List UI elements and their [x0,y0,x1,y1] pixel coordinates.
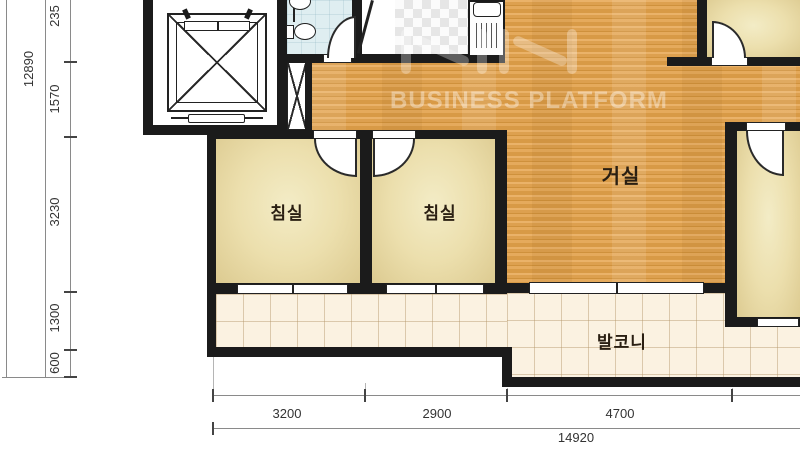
watermark-logo-icon [477,29,487,74]
room-label-living: 거실 [581,160,661,189]
dim-line [45,0,46,378]
toilet-icon [294,23,316,40]
wall [207,130,216,357]
watermark-logo-icon [567,29,577,74]
dim-left-seg-4: 600 [47,333,63,393]
counterweight-icon [188,114,245,123]
window [529,282,704,294]
door-threshold [372,130,416,139]
door-threshold [711,57,748,66]
dim-tick [731,389,733,402]
dim-bottom-seg-2: 4700 [590,406,650,422]
kitchen-sink-icon [473,2,501,17]
dim-tick [64,61,77,63]
floor-plan: 12890 235 1570 3230 1300 600 3200 2900 4… [0,0,800,450]
room-label-bedroom-1: 침실 [247,199,327,224]
entrance-vestibule [362,0,395,54]
dim-left-seg-2: 3230 [47,182,63,242]
duct-x-icon [287,62,307,130]
wall [748,57,800,66]
dim-line [213,428,800,429]
wall [207,130,313,139]
window [757,318,799,327]
wall [495,130,507,294]
dim-tick [64,291,77,293]
dim-left-seg-1: 1570 [47,69,63,129]
wall [697,0,707,63]
watermark-logo-icon [499,29,509,74]
room-label-bedroom-2: 침실 [400,199,480,224]
wall [416,130,507,139]
window [386,284,484,294]
room-label-balcony: 발코니 [572,328,672,353]
balcony-floor [216,294,507,347]
door-threshold [746,122,786,131]
dim-bottom-total: 14920 [541,430,611,446]
wall [667,57,711,66]
dim-line [70,0,71,378]
wall [737,122,746,131]
dim-tick [506,389,508,402]
wall [305,62,312,130]
dim-tick [64,136,77,138]
dim-tick [64,376,77,378]
door-threshold [313,130,357,139]
dim-bottom-seg-1: 2900 [407,406,467,422]
wall [786,122,800,131]
dim-left-total: 12890 [21,39,37,99]
dim-tick [364,389,366,402]
toilet-tank [286,25,294,39]
window [237,284,348,294]
dim-line [6,0,7,378]
wall [360,130,372,294]
dim-tick [64,349,77,351]
dim-tick [212,389,214,402]
watermark-text: BUSINESS PLATFORM [390,87,640,115]
watermark-logo-icon [401,29,411,74]
elevator-car-inner [176,22,258,103]
elevator-doors-icon [184,21,250,31]
dim-left-seg-0: 235 [47,0,63,46]
dim-tick [212,422,214,435]
wall [725,122,737,327]
dim-bottom-seg-0: 3200 [257,406,317,422]
wall [502,377,800,387]
wall [207,347,512,357]
